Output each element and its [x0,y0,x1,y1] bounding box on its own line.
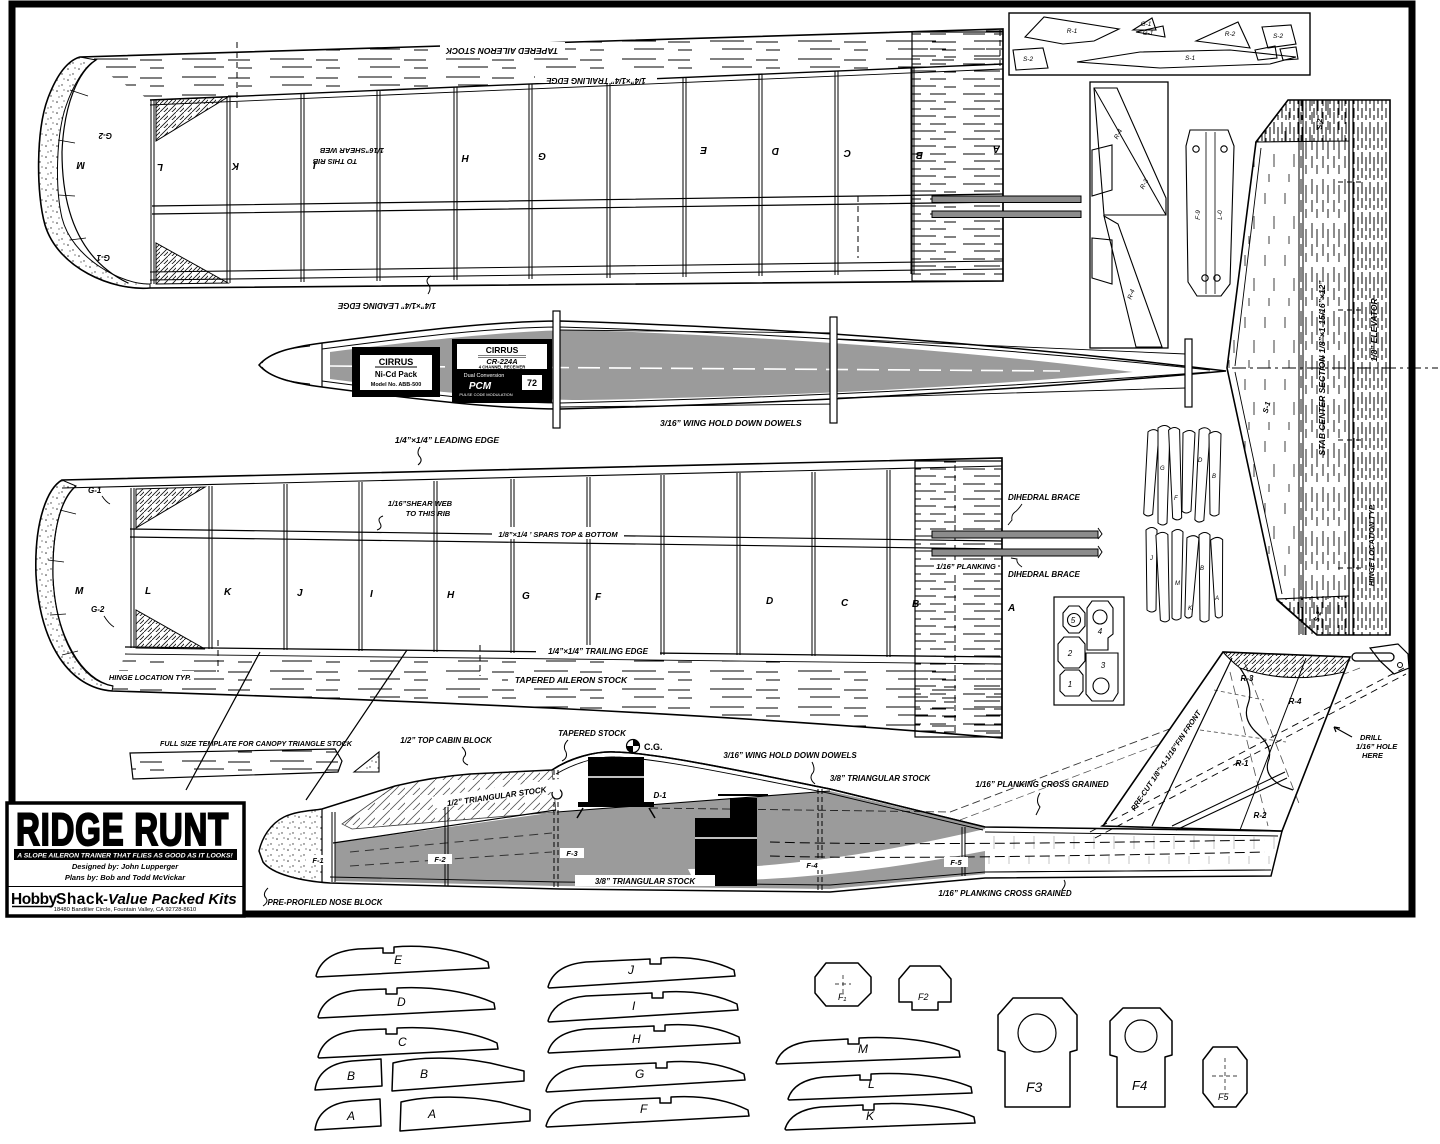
svg-text:TO THIS RIB: TO THIS RIB [406,509,451,518]
svg-text:C: C [843,147,851,158]
svg-text:C: C [398,1035,407,1049]
svg-text:1/4”×1/4” LEADING EDGE: 1/4”×1/4” LEADING EDGE [395,435,499,445]
svg-text:PRE-PROFILED NOSE BLOCK: PRE-PROFILED NOSE BLOCK [267,898,383,907]
svg-text:5: 5 [1071,616,1076,625]
svg-text:F: F [595,592,602,603]
svg-text:F-4: F-4 [806,861,818,870]
svg-text:B: B [912,599,919,610]
svg-text:1/16”SHEAR WEB: 1/16”SHEAR WEB [319,146,384,155]
svg-text:H: H [447,590,455,601]
svg-text:F: F [1174,496,1178,502]
svg-text:B: B [1212,474,1216,480]
svg-text:18480 Bandilier Circle, Founta: 18480 Bandilier Circle, Fountain Valley,… [54,907,197,913]
svg-text:M: M [858,1042,868,1056]
svg-text:G-1: G-1 [1141,21,1152,28]
svg-text:F-1: F-1 [312,856,323,865]
svg-text:D: D [397,995,406,1009]
svg-text:RIDGE RUNT: RIDGE RUNT [16,804,229,855]
svg-text:L: L [157,161,163,172]
svg-text:K: K [866,1109,875,1123]
svg-text:1/2” TOP CABIN BLOCK: 1/2” TOP CABIN BLOCK [400,736,493,745]
svg-text:1/16” HOLE: 1/16” HOLE [1356,742,1398,751]
svg-text:G: G [635,1067,644,1081]
svg-text:1/8”×1/4 ’ SPARS TOP & BOTTOM: 1/8”×1/4 ’ SPARS TOP & BOTTOM [498,530,618,539]
svg-text:B: B [1200,566,1204,572]
svg-text:4 CHANNEL RECEIVER: 4 CHANNEL RECEIVER [479,365,525,370]
svg-text:B: B [420,1067,428,1081]
svg-text:Designed by: John Lupperger: Designed by: John Lupperger [72,862,179,871]
svg-text:S-2: S-2 [1317,118,1324,129]
svg-text:3: 3 [1101,661,1106,670]
svg-text:Plans by: Bob and Todd McVicka: Plans by: Bob and Todd McVickar [65,873,186,882]
svg-text:B: B [916,149,923,160]
svg-text:TAPERED STOCK: TAPERED STOCK [558,729,627,738]
svg-text:D: D [1198,458,1203,464]
svg-text:H: H [632,1032,641,1046]
svg-text:3/8” TRIANGULAR STOCK: 3/8” TRIANGULAR STOCK [595,877,697,886]
svg-text:PULSE CODE MODULATION: PULSE CODE MODULATION [459,392,512,397]
svg-text:F3: F3 [1026,1079,1043,1095]
svg-text:Ni-Cd Pack: Ni-Cd Pack [375,370,418,379]
svg-text:C: C [841,598,849,609]
svg-text:HERE: HERE [1362,751,1384,760]
svg-text:PCM: PCM [469,381,492,392]
svg-text:G-1: G-1 [88,486,102,495]
svg-text:R-1: R-1 [1067,28,1078,35]
svg-text:2: 2 [1067,649,1073,658]
svg-text:K: K [231,160,239,171]
svg-text:HINGE LOCATION TYP.: HINGE LOCATION TYP. [109,673,191,682]
svg-text:B: B [347,1069,355,1083]
svg-text:K: K [224,587,232,598]
svg-text:G: G [538,150,546,161]
svg-text:A: A [1007,603,1015,614]
svg-text:Hobby: Hobby [11,891,58,908]
svg-text:G: G [1160,466,1165,472]
svg-text:E: E [394,953,403,967]
svg-text:R-2: R-2 [1254,811,1267,820]
svg-text:1/4”×1/4” TRAILING EDGE: 1/4”×1/4” TRAILING EDGE [548,647,648,656]
svg-text:CIRRUS: CIRRUS [486,345,519,355]
svg-text:G-2: G-2 [98,131,112,140]
svg-text:3/16” WING HOLD DOWN DOWELS: 3/16” WING HOLD DOWN DOWELS [660,418,802,428]
svg-text:1/4”×1/4” LEADING EDGE: 1/4”×1/4” LEADING EDGE [337,301,436,310]
svg-text:FULL SIZE TEMPLATE FOR CANOPY: FULL SIZE TEMPLATE FOR CANOPY TRIANGLE S… [160,739,353,748]
svg-text:A: A [993,143,1001,154]
svg-text:S-1: S-1 [1185,55,1196,62]
svg-text:D: D [772,145,779,156]
svg-text:A: A [427,1107,436,1121]
svg-text:F2: F2 [918,992,929,1002]
svg-text:F4: F4 [1132,1078,1147,1093]
svg-text:M: M [76,159,85,170]
svg-text:L: L [868,1077,875,1091]
svg-text:Dual Conversion: Dual Conversion [464,373,505,379]
svg-text:3/8” TRIANGULAR STOCK: 3/8” TRIANGULAR STOCK [830,774,932,783]
svg-text:F-3: F-3 [566,849,578,858]
svg-text:Shack: Shack [56,891,104,908]
svg-text:1/16”SHEAR WEB: 1/16”SHEAR WEB [388,499,453,508]
svg-text:1/8” ELEVATOR: 1/8” ELEVATOR [1369,297,1379,361]
svg-text:F₁: F₁ [838,992,846,1002]
svg-text:F5: F5 [1218,1092,1229,1102]
svg-text:F-9: F-9 [1195,210,1202,220]
svg-text:I: I [370,589,373,600]
svg-text:1/16” PLANKING CROSS GRAINED: 1/16” PLANKING CROSS GRAINED [938,889,1072,898]
svg-text:L-0: L-0 [1217,210,1224,220]
svg-text:S-2: S-2 [1273,33,1284,40]
svg-text:G: G [522,591,530,602]
svg-text:Model No. ABB-500: Model No. ABB-500 [371,382,422,388]
svg-text:J: J [297,588,303,599]
svg-text:R-1: R-1 [1236,759,1249,768]
svg-text:DIHEDRAL BRACE: DIHEDRAL BRACE [1008,570,1081,579]
svg-text:TO THIS RIB: TO THIS RIB [312,157,357,166]
svg-text:4: 4 [1098,627,1103,636]
svg-text:TAPERED AILERON STOCK: TAPERED AILERON STOCK [515,675,628,685]
svg-text:F-5: F-5 [950,858,962,867]
svg-text:H: H [461,152,469,163]
svg-text:1: 1 [1068,680,1072,689]
svg-text:DIHEDRAL BRACE: DIHEDRAL BRACE [1008,493,1081,502]
svg-text:A: A [346,1109,355,1123]
svg-text:G-2: G-2 [91,605,105,614]
svg-text:C.G.: C.G. [644,742,663,752]
svg-text:R-3: R-3 [1241,674,1254,683]
svg-text:STAB CENTER SECTION 1/8”×1-15/: STAB CENTER SECTION 1/8”×1-15/16”×12” [1317,280,1327,456]
svg-text:F: F [640,1102,648,1116]
svg-text:R-4: R-4 [1289,697,1302,706]
svg-text:-Value Packed Kits: -Value Packed Kits [103,891,237,908]
svg-text:G-1: G-1 [1143,30,1154,37]
svg-text:A: A [1214,596,1219,602]
svg-text:1/4”×1/4” TRAILING EDGE: 1/4”×1/4” TRAILING EDGE [545,76,645,85]
svg-text:J: J [627,963,635,977]
svg-text:M: M [1175,581,1180,587]
svg-text:G-1: G-1 [96,253,110,262]
svg-text:HINGE LOCATION TYP.: HINGE LOCATION TYP. [1367,504,1376,586]
svg-text:E: E [700,144,707,155]
svg-text:1/16” PLANKING: 1/16” PLANKING [936,562,996,571]
svg-text:TAPERED AILERON STOCK: TAPERED AILERON STOCK [445,46,558,56]
svg-text:S-2: S-2 [1023,56,1034,63]
svg-text:1/16” PLANKING CROSS GRAINED: 1/16” PLANKING CROSS GRAINED [975,780,1109,789]
svg-text:F-2: F-2 [434,855,446,864]
svg-text:3/16” WING HOLD DOWN DOWELS: 3/16” WING HOLD DOWN DOWELS [723,751,857,760]
svg-text:72: 72 [527,378,537,388]
svg-text:M: M [75,586,84,597]
svg-text:L: L [145,586,151,597]
svg-text:D-1: D-1 [654,791,667,800]
svg-text:A SLOPE AILERON TRAINER THAT F: A SLOPE AILERON TRAINER THAT FLIES AS GO… [16,853,233,860]
svg-text:R-2: R-2 [1225,31,1236,38]
svg-text:D: D [766,596,773,607]
svg-text:CIRRUS: CIRRUS [379,357,414,367]
svg-text:DRILL: DRILL [1360,733,1382,742]
